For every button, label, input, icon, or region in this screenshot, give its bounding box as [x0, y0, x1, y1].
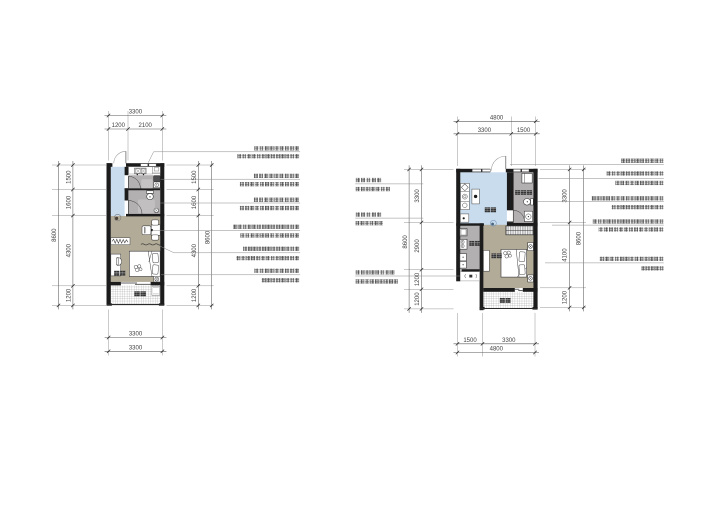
svg-text:4800: 4800 — [490, 347, 504, 353]
svg-text:1200: 1200 — [112, 123, 126, 129]
svg-text:1500: 1500 — [192, 170, 198, 184]
svg-text:1200: 1200 — [192, 288, 198, 302]
svg-text:3300: 3300 — [562, 189, 568, 203]
svg-text:1500: 1500 — [517, 128, 531, 134]
svg-text:4300: 4300 — [192, 243, 198, 257]
svg-text:1500: 1500 — [67, 170, 73, 184]
svg-text:2100: 2100 — [139, 123, 153, 129]
svg-text:3300: 3300 — [478, 128, 492, 134]
svg-text:3300: 3300 — [415, 189, 421, 203]
svg-text:3300: 3300 — [502, 338, 516, 344]
svg-text:4300: 4300 — [67, 243, 73, 257]
svg-text:3300: 3300 — [129, 346, 143, 352]
svg-text:8600: 8600 — [403, 235, 409, 249]
svg-text:8600: 8600 — [205, 230, 211, 244]
svg-text:1200: 1200 — [415, 292, 421, 306]
svg-text:1500: 1500 — [463, 338, 477, 344]
svg-text:8600: 8600 — [576, 231, 582, 245]
svg-text:1600: 1600 — [67, 195, 73, 209]
svg-text:4800: 4800 — [490, 115, 504, 121]
svg-text:2900: 2900 — [415, 239, 421, 253]
svg-text:8600: 8600 — [52, 228, 58, 242]
svg-text:3300: 3300 — [129, 110, 143, 116]
svg-text:1200: 1200 — [415, 272, 421, 286]
svg-text:4100: 4100 — [562, 248, 568, 262]
svg-text:1600: 1600 — [192, 195, 198, 209]
svg-text:1200: 1200 — [67, 288, 73, 302]
svg-text:1200: 1200 — [562, 290, 568, 304]
svg-text:3300: 3300 — [129, 332, 143, 338]
